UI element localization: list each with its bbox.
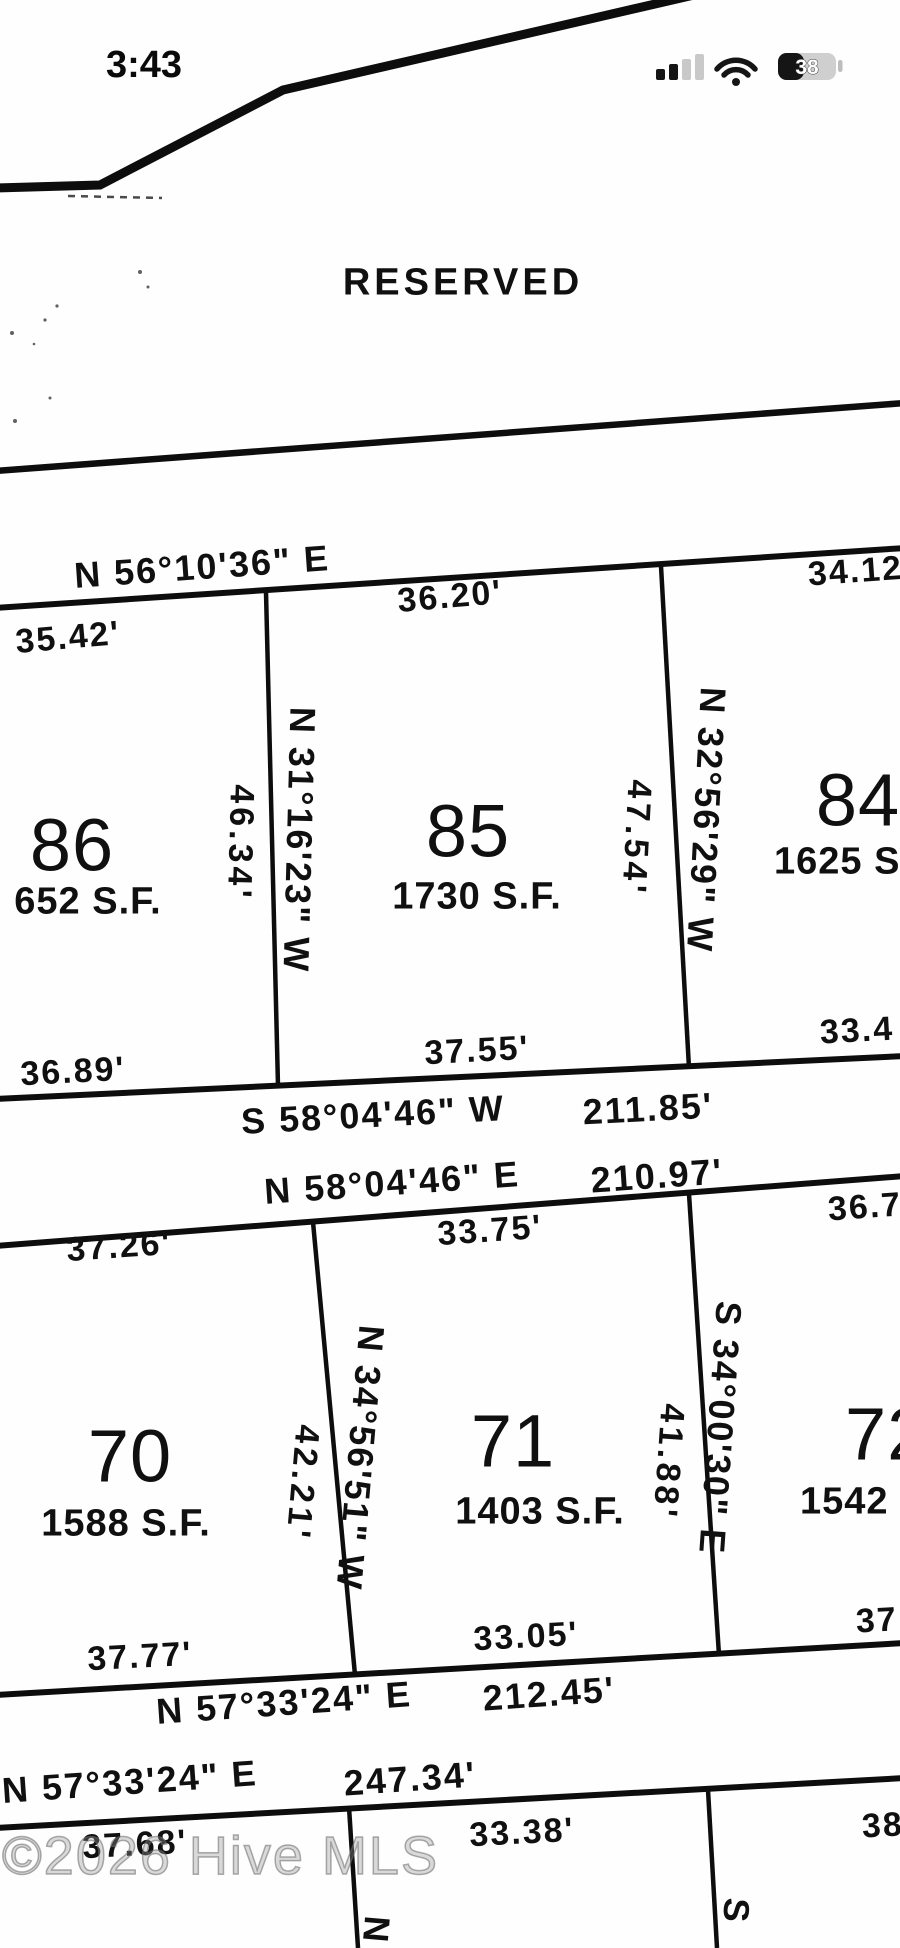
length-line-86-85: 46.34': [219, 784, 261, 902]
battery-percent: 38: [795, 56, 819, 79]
rear-dim-lot84: 33.4: [819, 1010, 895, 1053]
scan-specks: [10, 270, 150, 423]
lot-area-70: 1588 S.F.: [41, 1503, 211, 1546]
lot-number-70: 70: [88, 1414, 172, 1499]
front-dim-lot71: 33.75': [436, 1208, 544, 1254]
row1-rear-distance: 211.85': [582, 1085, 715, 1134]
rear-dim-lot85: 37.55': [423, 1029, 530, 1073]
row3-left-bearing-start: N: [354, 1914, 398, 1946]
front-dim-lot72: 36.7: [827, 1185, 900, 1229]
row3-mid-dim: 33.38': [468, 1811, 575, 1855]
length-line-85-84: 47.54': [613, 778, 658, 897]
lot-area-86: 652 S.F.: [14, 881, 161, 924]
status-icons: 38: [648, 44, 863, 88]
bearing-line-86-85: N 31°16'23" W: [275, 706, 324, 973]
rear-dim-lot72: 37: [855, 1600, 899, 1641]
front-dim-lot84: 34.12': [807, 548, 900, 594]
lot-number-72: 72: [845, 1392, 900, 1477]
lot-area-84: 1625 S.: [774, 841, 900, 884]
lot-line-86-85: [266, 592, 278, 1086]
rear-dim-lot86: 36.89': [19, 1050, 126, 1094]
front-dim-lot70: 37.26': [65, 1224, 173, 1270]
cellular-signal-icon: [656, 54, 704, 80]
road-tick-marks: [68, 196, 162, 198]
rear-dim-lot70: 37.77': [86, 1635, 193, 1679]
battery-icon: 38: [778, 53, 843, 80]
rear-dim-lot71: 33.05': [472, 1615, 579, 1659]
row3-lot-line-right: [708, 1790, 717, 1948]
wifi-icon: [717, 60, 755, 86]
length-line-71-72: 41.88': [644, 1402, 691, 1522]
row3-right-dim: 38: [861, 1805, 900, 1846]
lot-area-72: 1542: [800, 1481, 889, 1524]
phone-screen: RESERVED N 56°10'36" E 35.42' 36.20' 34.…: [0, 0, 900, 1948]
lot-number-71: 71: [471, 1399, 555, 1484]
lot-number-86: 86: [30, 803, 114, 888]
status-bar: 3:43 38: [0, 0, 900, 100]
row1-street-line-north: [0, 403, 900, 471]
plat-photo[interactable]: RESERVED N 56°10'36" E 35.42' 36.20' 34.…: [0, 0, 900, 1948]
lot-number-85: 85: [426, 789, 510, 874]
status-time: 3:43: [106, 44, 182, 87]
lot-area-85: 1730 S.F.: [392, 876, 562, 919]
lot-number-84: 84: [816, 758, 900, 843]
lot-area-71: 1403 S.F.: [455, 1491, 625, 1534]
reserved-label: RESERVED: [343, 262, 583, 305]
row3-right-bearing-start: S: [714, 1897, 758, 1926]
mls-watermark: ©2026 Hive MLS: [2, 1825, 439, 1887]
